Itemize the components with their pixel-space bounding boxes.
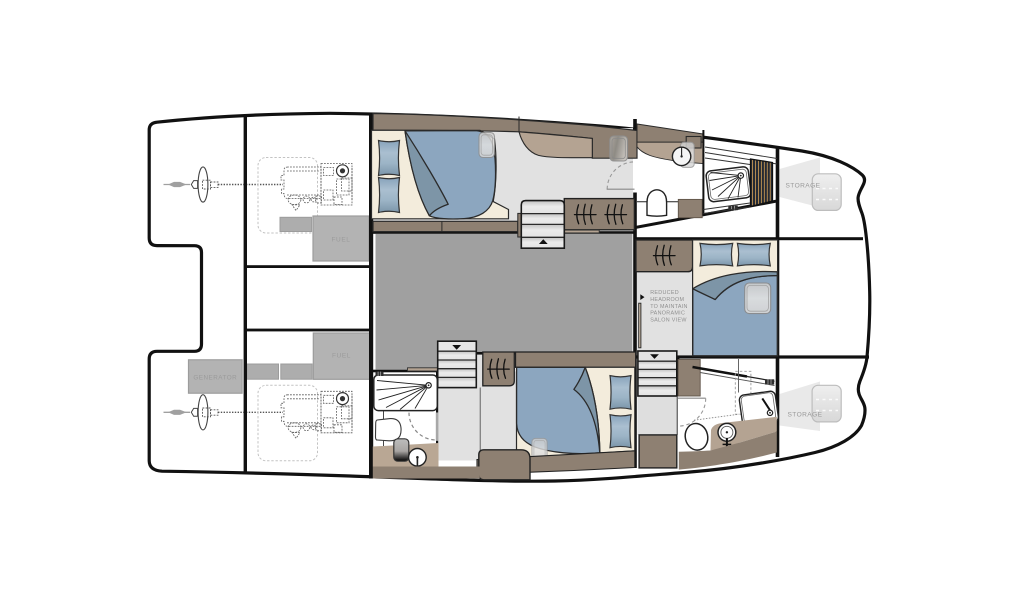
svg-text:FUEL: FUEL xyxy=(331,237,350,244)
svg-text:STORAGE: STORAGE xyxy=(788,412,823,419)
svg-text:TO MAINTAIN: TO MAINTAIN xyxy=(650,304,688,310)
svg-text:SALON VIEW: SALON VIEW xyxy=(650,317,687,323)
svg-text:GENERATOR: GENERATOR xyxy=(193,374,237,381)
svg-text:FUEL: FUEL xyxy=(332,353,351,360)
svg-text:STORAGE: STORAGE xyxy=(786,183,821,190)
svg-text:PANORAMIC: PANORAMIC xyxy=(650,311,685,317)
svg-text:HEADROOM: HEADROOM xyxy=(650,297,684,303)
svg-text:REDUCED: REDUCED xyxy=(650,290,679,296)
